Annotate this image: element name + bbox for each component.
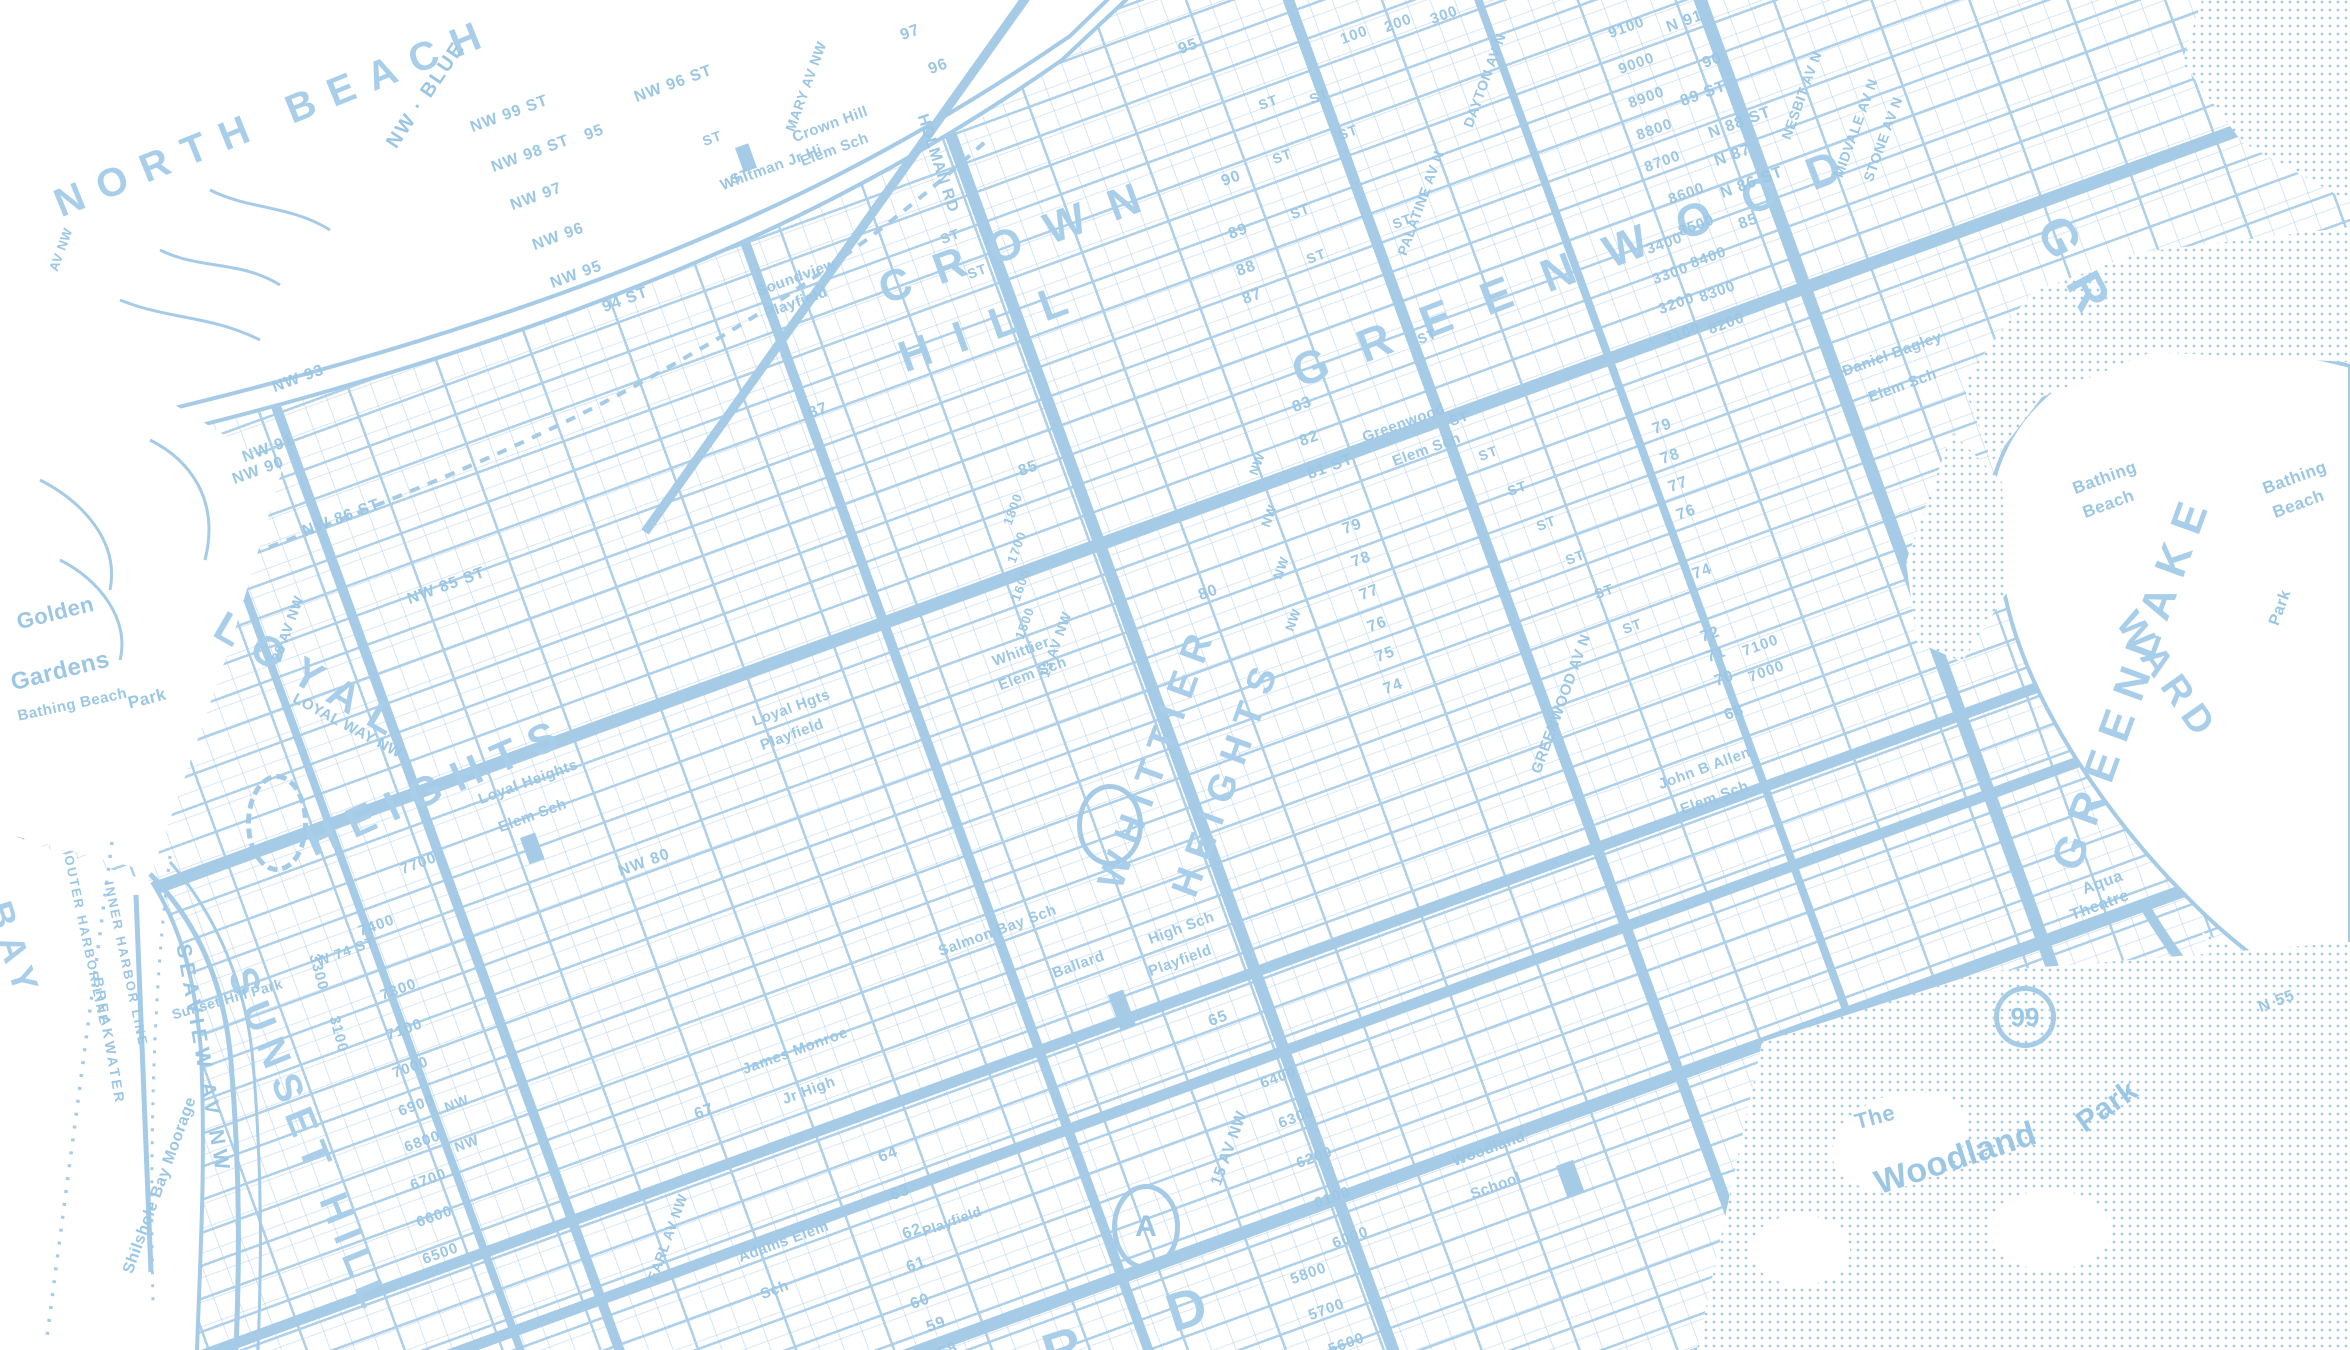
block-number-5600: 5600 <box>1326 1329 1367 1350</box>
place-label-dayton-av-n: DAYTON AV N <box>1460 31 1509 129</box>
place-label-nesbit-av-n: NESBIT AV N <box>1778 49 1825 142</box>
place-label-park: Park <box>2070 1074 2144 1140</box>
map-labels-layer: NORTH BEACHCROWNHILLGREENWOODLOYALHEIGHT… <box>0 0 2350 1350</box>
place-label-elem-sch: Elem Sch <box>1390 430 1463 470</box>
street-label-94-st: 94 ST <box>600 284 651 317</box>
block-number-6500: 6500 <box>420 1239 461 1268</box>
street-label-95: 95 <box>1176 35 1201 59</box>
street-label-61: 61 <box>904 1253 929 1277</box>
place-label-elem-sch: Elem Sch <box>496 796 569 836</box>
street-label-nw-96-st: NW 96 ST <box>632 62 715 107</box>
street-label-60: 60 <box>908 1290 933 1314</box>
street-label-75: 75 <box>1373 643 1398 667</box>
place-label-school: School <box>1468 1169 1524 1203</box>
street-label-81-st: 81 ST <box>1305 451 1356 484</box>
street-label-95: 95 <box>582 121 607 145</box>
place-label-holman-rd: HOLMAN RD <box>913 112 962 215</box>
street-label-90: 90 <box>1219 167 1244 191</box>
district-label-bay: BAY <box>0 896 50 1007</box>
street-label-87: 87 <box>1240 285 1265 309</box>
map-canvas[interactable]: NORTH BEACHCROWNHILLGREENWOODLOYALHEIGHT… <box>0 0 2350 1350</box>
place-label-15-av-nw: 15 AV NW <box>1208 1109 1252 1188</box>
street-label-st: ST <box>1256 91 1280 113</box>
block-number-6900: 6900 <box>396 1091 437 1120</box>
street-label-nw-99-st: NW 99 ST <box>468 92 551 137</box>
district-label-north-beach: NORTH BEACH <box>48 8 502 226</box>
block-number-6200: 6200 <box>1294 1143 1335 1172</box>
block-number-6100: 6100 <box>1312 1183 1353 1212</box>
street-label-78: 78 <box>1658 445 1683 469</box>
block-number-8300: 8300 <box>1697 277 1738 306</box>
place-label-ballard: Ballard <box>1050 947 1107 982</box>
street-label-71: 71 <box>1704 643 1729 667</box>
street-label-80: 80 <box>1196 581 1221 605</box>
street-label-nw-95: NW 95 <box>548 258 605 293</box>
street-label-n-91: N 91 <box>1664 7 1706 37</box>
street-label-96: 96 <box>926 55 951 79</box>
block-number-5700: 5700 <box>1306 1295 1347 1324</box>
place-label-sch: Sch <box>758 1277 791 1303</box>
street-label-89-st: 89 ST <box>1678 78 1729 111</box>
route-99-shield: 99 <box>1994 986 2056 1048</box>
place-label-elem-sch: Elem Sch <box>1678 778 1751 818</box>
block-number-200: 200 <box>1382 10 1414 36</box>
street-label-87: 87 <box>806 399 831 423</box>
block-number-1800: 1800 <box>1000 491 1025 527</box>
place-label-adams-elem: Adams Elem <box>736 1217 831 1265</box>
street-label-74: 74 <box>1381 675 1406 699</box>
block-number-6600: 6600 <box>414 1202 455 1231</box>
street-label-79: 79 <box>1650 415 1675 439</box>
street-label-st: ST <box>1620 615 1644 637</box>
street-label-77: 77 <box>1357 581 1382 605</box>
block-number-1700: 1700 <box>1004 529 1029 565</box>
place-label-elem-sch: Elem Sch <box>1866 366 1939 406</box>
block-number-1600: 1600 <box>1008 567 1033 603</box>
street-label-st: ST <box>1270 145 1294 167</box>
block-number-3100: 3100 <box>1662 319 1703 348</box>
street-label-59: 59 <box>924 1313 949 1337</box>
place-label-woodland: Woodland <box>1450 1128 1527 1170</box>
street-label-64: 64 <box>876 1143 901 1167</box>
street-label-st: ST <box>1505 477 1529 499</box>
block-number-6000: 6000 <box>1330 1223 1371 1252</box>
place-label-the: The <box>1852 1099 1898 1135</box>
street-label-78: 78 <box>1349 548 1374 572</box>
street-label-63: 63 <box>888 1181 913 1205</box>
place-label-palatine-av-n: PALATINE AV N <box>1394 148 1447 257</box>
street-label-nw: NW <box>452 1131 481 1155</box>
block-number-7700: 7700 <box>398 849 439 878</box>
street-label-st: ST <box>1476 442 1500 464</box>
block-number-6300: 6300 <box>1276 1103 1317 1132</box>
street-label-st: ST <box>1534 512 1558 534</box>
block-number-8800: 8800 <box>1634 115 1675 144</box>
street-label-n-87: N 87 <box>1712 141 1754 171</box>
street-label-77: 77 <box>1666 473 1691 497</box>
block-number-6400: 6400 <box>1258 1063 1299 1092</box>
place-label-outer-harbor-line: OUTER HARBOR LINE <box>61 854 112 1027</box>
playfield-oval <box>1077 784 1143 866</box>
street-label-82: 82 <box>1297 427 1322 451</box>
street-label-70: 70 <box>1712 667 1737 691</box>
place-label-greenwood-av-n: GREENWOOD AV N <box>1528 632 1594 776</box>
place-label-nw: NW <box>1270 555 1292 581</box>
block-number-7100: 7100 <box>384 1015 425 1044</box>
street-label-nw-80: NW 80 <box>616 846 673 881</box>
place-label-park: Park <box>2266 588 2295 629</box>
place-label-james-monroe: James Monroe <box>740 1024 850 1078</box>
street-label-79: 79 <box>1340 515 1365 539</box>
block-number-9000: 9000 <box>1616 49 1657 78</box>
block-number-1500: 1500 <box>1012 605 1037 641</box>
place-label-playfield: Playfield <box>920 1203 984 1239</box>
street-label-68: 68 <box>1722 701 1747 725</box>
street-label-83: 83 <box>1290 393 1315 417</box>
block-number-300: 300 <box>1428 2 1460 28</box>
street-label-97: 97 <box>898 21 923 45</box>
street-label-85: 85 <box>1016 457 1041 481</box>
place-label-golden: Golden <box>14 591 97 635</box>
block-number-8900: 8900 <box>1626 83 1667 112</box>
street-label-90: 90 <box>1700 49 1725 73</box>
place-label-nw: NW <box>1246 451 1268 477</box>
street-label-nw-97: NW 97 <box>508 180 565 215</box>
street-label-76: 76 <box>1365 613 1390 637</box>
district-label-sunset-hill: SUNSET HILL <box>218 961 399 1323</box>
street-label-67: 67 <box>692 1100 717 1124</box>
street-label-st: ST <box>1307 85 1331 107</box>
street-label-st: ST <box>1447 407 1471 429</box>
street-label-76: 76 <box>1674 501 1699 525</box>
block-number-7400: 7400 <box>356 911 397 940</box>
block-number-6700: 6700 <box>408 1165 449 1194</box>
street-label-nw-93: NW 93 <box>270 362 327 397</box>
block-number-7100: 7100 <box>1740 631 1781 660</box>
block-number-8700: 8700 <box>1642 147 1683 176</box>
place-label-playfield: Playfield <box>1146 941 1214 980</box>
district-label-greenwood: GREENWOOD <box>1284 127 1880 399</box>
street-label-58: 58 <box>936 1339 961 1350</box>
street-label-st: ST <box>1288 200 1312 222</box>
place-label-jr-high: Jr High <box>780 1073 838 1108</box>
block-number-7300: 7300 <box>378 975 419 1004</box>
block-number-3200: 3200 <box>1656 289 1697 318</box>
street-label-88: 88 <box>1234 257 1259 281</box>
place-label-nw: NW <box>1282 607 1304 633</box>
place-label-salmon-bay-sch: Salmon Bay Sch <box>936 901 1059 960</box>
place-label-park: Park <box>126 685 169 714</box>
circled-a-marker: A <box>1112 1184 1180 1270</box>
street-label-nw-85-st: NW 85 ST <box>405 564 488 609</box>
district-label-loyal: LOYAL <box>206 602 419 753</box>
block-number-5800: 5800 <box>1288 1259 1329 1288</box>
place-label-shilshole-bay-moorage: Shilshole Bay Moorage <box>120 1095 201 1276</box>
district-label-gr: GR <box>2025 206 2134 342</box>
street-label-st: ST <box>1336 121 1360 143</box>
street-label-74: 74 <box>1690 560 1715 584</box>
street-label-st: ST <box>1304 245 1328 267</box>
street-label-nw-98-st: NW 98 ST <box>489 132 572 177</box>
block-number-3100: 3100 <box>326 1014 352 1055</box>
street-label-st: ST <box>1592 580 1616 602</box>
block-number-7000: 7000 <box>390 1053 431 1082</box>
block-number-6800: 6800 <box>402 1127 443 1156</box>
block-number-3300: 3300 <box>1650 259 1691 288</box>
block-number-7000: 7000 <box>1746 657 1787 686</box>
loyal-playfield-oval <box>246 774 308 872</box>
street-label-st: ST <box>700 127 724 149</box>
block-number-8200: 8200 <box>1706 309 1747 338</box>
place-label-earl-av-nw: EARL AV NW <box>644 1192 690 1284</box>
place-label-av-nw: AV NW <box>46 226 75 273</box>
street-label-65: 65 <box>1206 1007 1231 1031</box>
street-label-n-55: N 55 <box>2256 987 2298 1017</box>
block-number-9100: 9100 <box>1606 13 1647 42</box>
street-label-89: 89 <box>1226 220 1251 244</box>
street-label-nw: NW <box>442 1091 471 1115</box>
street-label-nw-96: NW 96 <box>530 220 587 255</box>
street-label-n-88-st: N 88 ST <box>1706 104 1774 143</box>
street-label-nw-86-st: NW 86 ST <box>300 496 383 541</box>
street-label-st: ST <box>1563 546 1587 568</box>
block-number-100: 100 <box>1338 22 1370 48</box>
place-label-gardens: Gardens <box>8 646 113 698</box>
place-label-nw: NW <box>1258 503 1280 529</box>
district-label-r-d: R D <box>1035 1262 1251 1350</box>
place-label-woodland: Woodland <box>1870 1114 2042 1203</box>
